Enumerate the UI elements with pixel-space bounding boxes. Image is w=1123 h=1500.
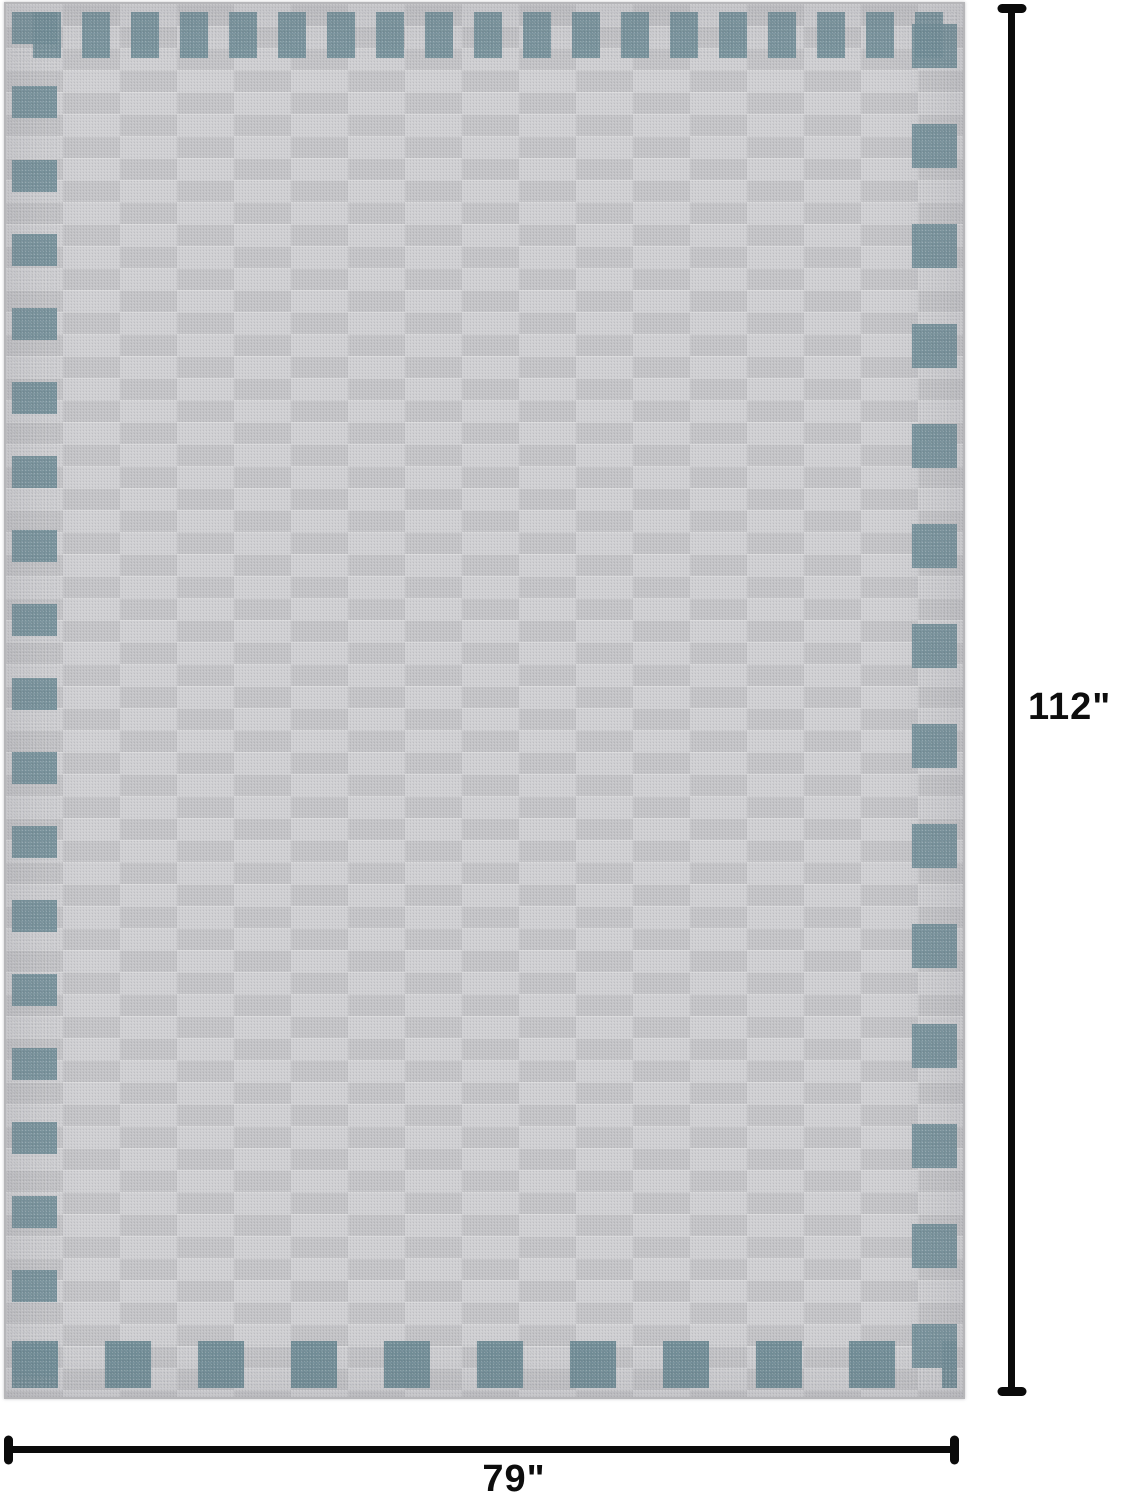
rug-photo	[4, 2, 965, 1399]
width-dimension-cap-left	[4, 1435, 13, 1464]
rug-checkered-border-bottom	[12, 1341, 957, 1388]
product-dimension-figure: 112" 79"	[0, 0, 1123, 1500]
width-dimension-line	[6, 1446, 957, 1453]
height-dimension-label: 112"	[1028, 686, 1111, 729]
rug-weave-texture	[6, 4, 963, 1397]
width-dimension-cap-right	[950, 1435, 959, 1464]
rug-checkered-border-left	[12, 12, 57, 1388]
height-dimension-line	[1008, 6, 1015, 1394]
width-dimension-label: 79"	[482, 1458, 545, 1500]
rug-checkered-border-top	[12, 12, 957, 58]
height-dimension-cap-bottom	[997, 1387, 1026, 1396]
height-dimension-cap-top	[997, 4, 1026, 13]
rug-checkered-border-right	[912, 12, 957, 1388]
